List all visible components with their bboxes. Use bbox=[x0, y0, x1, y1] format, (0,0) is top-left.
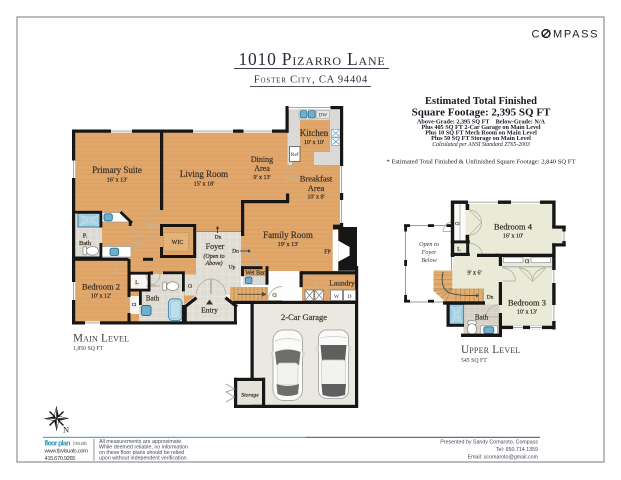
svg-text:upon without independent verif: upon without independent verification. bbox=[99, 456, 188, 462]
svg-text:Dn: Dn bbox=[215, 235, 222, 241]
svg-text:FP: FP bbox=[324, 250, 330, 256]
svg-text:DW: DW bbox=[319, 113, 328, 119]
svg-text:Tel: 650.714.1359: Tel: 650.714.1359 bbox=[496, 447, 538, 453]
svg-text:Cl: Cl bbox=[525, 260, 530, 265]
svg-text:Ref: Ref bbox=[291, 151, 299, 158]
svg-text:Upper Level: Upper Level bbox=[461, 344, 520, 356]
svg-text:Primary Suite: Primary Suite bbox=[92, 165, 142, 175]
svg-text:Plus 50 SQ FT Storage on Main: Plus 50 SQ FT Storage on Main Level bbox=[431, 135, 531, 142]
svg-text:Wet Bar: Wet Bar bbox=[245, 270, 265, 276]
svg-text:Square Footage: 2,395 SQ FT: Square Footage: 2,395 SQ FT bbox=[412, 107, 551, 119]
svg-text:* Estimated Total Finished & U: * Estimated Total Finished & Unfinished … bbox=[387, 159, 576, 166]
svg-text:Above): Above) bbox=[205, 260, 223, 267]
svg-text:9' x 6': 9' x 6' bbox=[467, 271, 481, 277]
svg-text:Up: Up bbox=[229, 265, 236, 271]
svg-text:P.: P. bbox=[83, 233, 88, 240]
svg-text:floor plan: floor plan bbox=[45, 441, 71, 448]
svg-text:Estimated Total Finished: Estimated Total Finished bbox=[425, 96, 537, 107]
svg-text:9' x 13': 9' x 13' bbox=[253, 175, 270, 181]
svg-text:10' x 8': 10' x 8' bbox=[307, 195, 324, 201]
svg-text:Calculated per ANSI Standard Z: Calculated per ANSI Standard Z765-2003 bbox=[432, 142, 530, 148]
svg-text:415.670.9265: 415.670.9265 bbox=[45, 456, 76, 462]
svg-text:Bedroom 3: Bedroom 3 bbox=[508, 298, 546, 308]
svg-text:Bedroom 4: Bedroom 4 bbox=[494, 222, 533, 232]
svg-text:MPASS: MPASS bbox=[553, 29, 599, 41]
svg-text:16' x 10': 16' x 10' bbox=[503, 234, 523, 240]
svg-text:Below: Below bbox=[421, 257, 437, 264]
svg-text:10' x 12': 10' x 12' bbox=[91, 294, 111, 300]
svg-text:Cl: Cl bbox=[272, 293, 277, 298]
svg-text:Open to: Open to bbox=[419, 241, 439, 248]
svg-text:N: N bbox=[63, 425, 69, 435]
svg-text:| visuals: | visuals bbox=[73, 441, 88, 447]
svg-text:Family Room: Family Room bbox=[263, 230, 313, 240]
svg-text:1,850 SQ FT: 1,850 SQ FT bbox=[73, 346, 104, 352]
svg-text:D: D bbox=[347, 294, 351, 300]
svg-text:Foyer: Foyer bbox=[206, 242, 225, 251]
svg-text:545 SQ FT: 545 SQ FT bbox=[461, 358, 487, 364]
svg-text:10' x 10': 10' x 10' bbox=[304, 140, 324, 146]
svg-text:Bath: Bath bbox=[146, 295, 160, 303]
svg-text:Kitchen: Kitchen bbox=[300, 128, 329, 138]
svg-text:Bath: Bath bbox=[79, 240, 92, 247]
svg-text:Dining: Dining bbox=[251, 155, 273, 164]
svg-text:2-Car Garage: 2-Car Garage bbox=[281, 312, 327, 322]
svg-text:Laundry: Laundry bbox=[329, 279, 355, 288]
svg-text:Storage: Storage bbox=[241, 393, 259, 399]
svg-text:Living Room: Living Room bbox=[180, 169, 228, 179]
svg-text:Email: scomaroto@gmail.com: Email: scomaroto@gmail.com bbox=[468, 455, 539, 461]
svg-text:19' x 13': 19' x 13' bbox=[278, 241, 299, 248]
svg-text:Cl: Cl bbox=[188, 284, 193, 289]
svg-text:Dn: Dn bbox=[487, 295, 494, 301]
svg-text:WIC: WIC bbox=[172, 240, 184, 246]
svg-text:10' x 13': 10' x 13' bbox=[517, 310, 537, 316]
svg-text:W: W bbox=[334, 294, 340, 300]
svg-text:Area: Area bbox=[254, 164, 270, 173]
svg-text:C: C bbox=[532, 29, 540, 41]
svg-text:L: L bbox=[135, 280, 139, 286]
svg-text:Presented by Sandy Comaroto, C: Presented by Sandy Comaroto, Compass bbox=[440, 440, 538, 446]
svg-text:Area: Area bbox=[308, 183, 325, 193]
svg-text:Foster City, CA 94404: Foster City, CA 94404 bbox=[254, 75, 368, 86]
svg-text:Cl: Cl bbox=[455, 221, 460, 226]
svg-text:15' x 18': 15' x 18' bbox=[194, 181, 215, 188]
svg-text:1010 Pizarro Lane: 1010 Pizarro Lane bbox=[238, 49, 385, 69]
svg-text:Cl: Cl bbox=[132, 302, 137, 307]
svg-text:Entry: Entry bbox=[201, 306, 218, 315]
svg-text:Bedroom 2: Bedroom 2 bbox=[82, 282, 120, 292]
svg-text:L: L bbox=[457, 247, 461, 253]
svg-text:(Open to: (Open to bbox=[203, 253, 224, 260]
svg-text:Breakfast: Breakfast bbox=[300, 174, 333, 184]
svg-text:www.fpvisuals.com: www.fpvisuals.com bbox=[44, 449, 89, 455]
svg-text:Bath: Bath bbox=[475, 314, 489, 322]
svg-text:16' x 13': 16' x 13' bbox=[107, 177, 128, 184]
svg-text:Main Level: Main Level bbox=[73, 333, 129, 345]
svg-text:Dn: Dn bbox=[232, 249, 239, 255]
svg-text:Foyer: Foyer bbox=[421, 249, 437, 256]
